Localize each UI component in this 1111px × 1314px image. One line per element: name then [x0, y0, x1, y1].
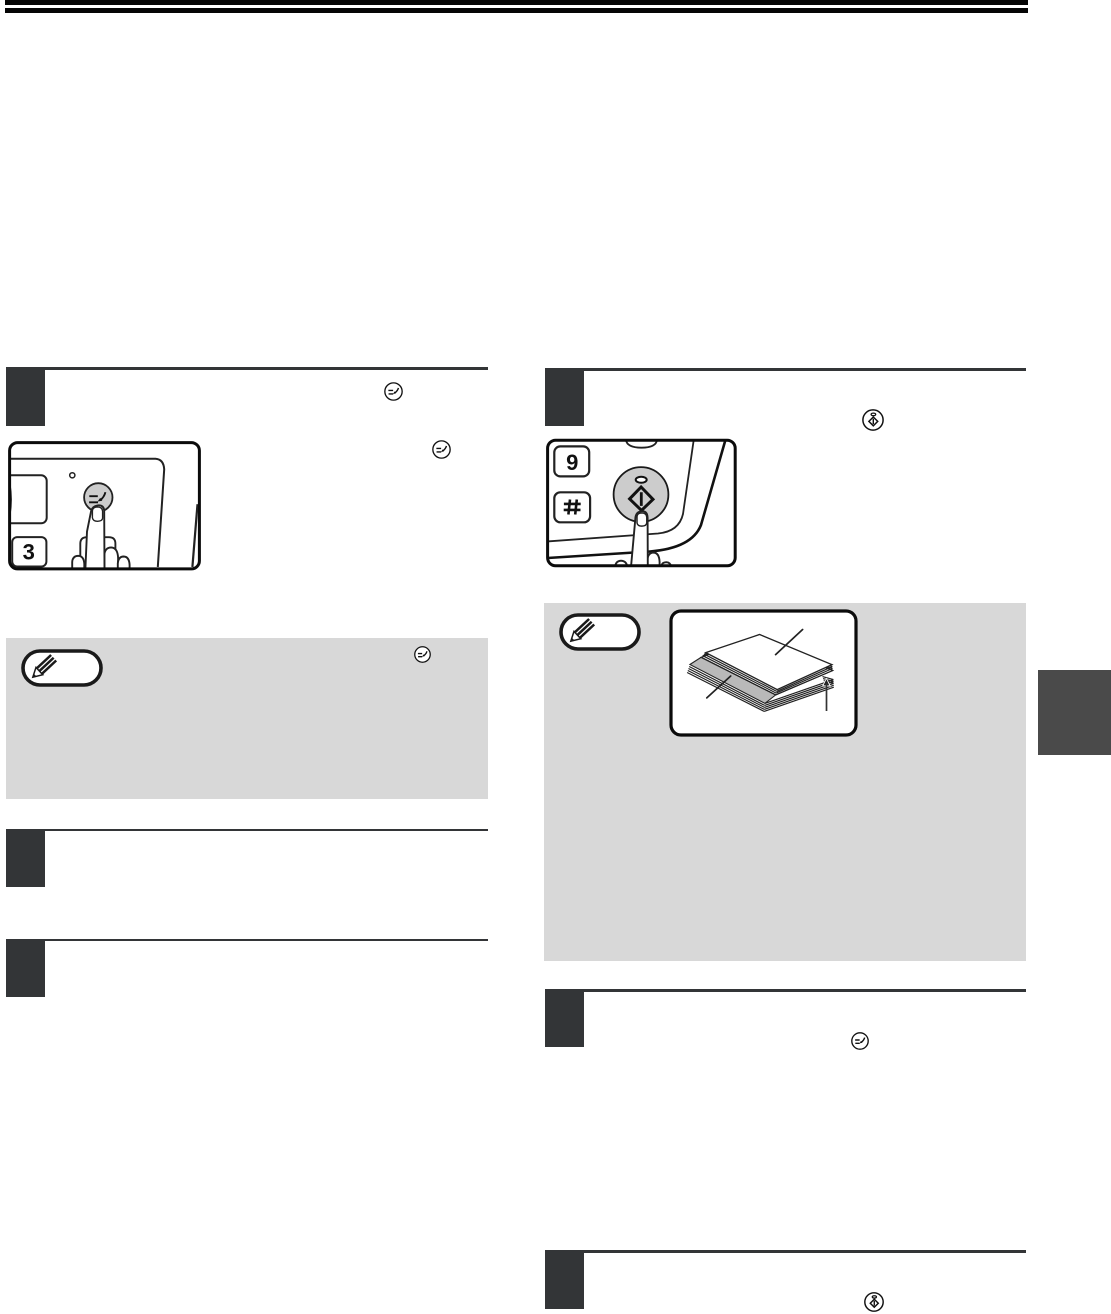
svg-text:3: 3 [23, 540, 35, 565]
svg-text:9: 9 [566, 450, 578, 475]
